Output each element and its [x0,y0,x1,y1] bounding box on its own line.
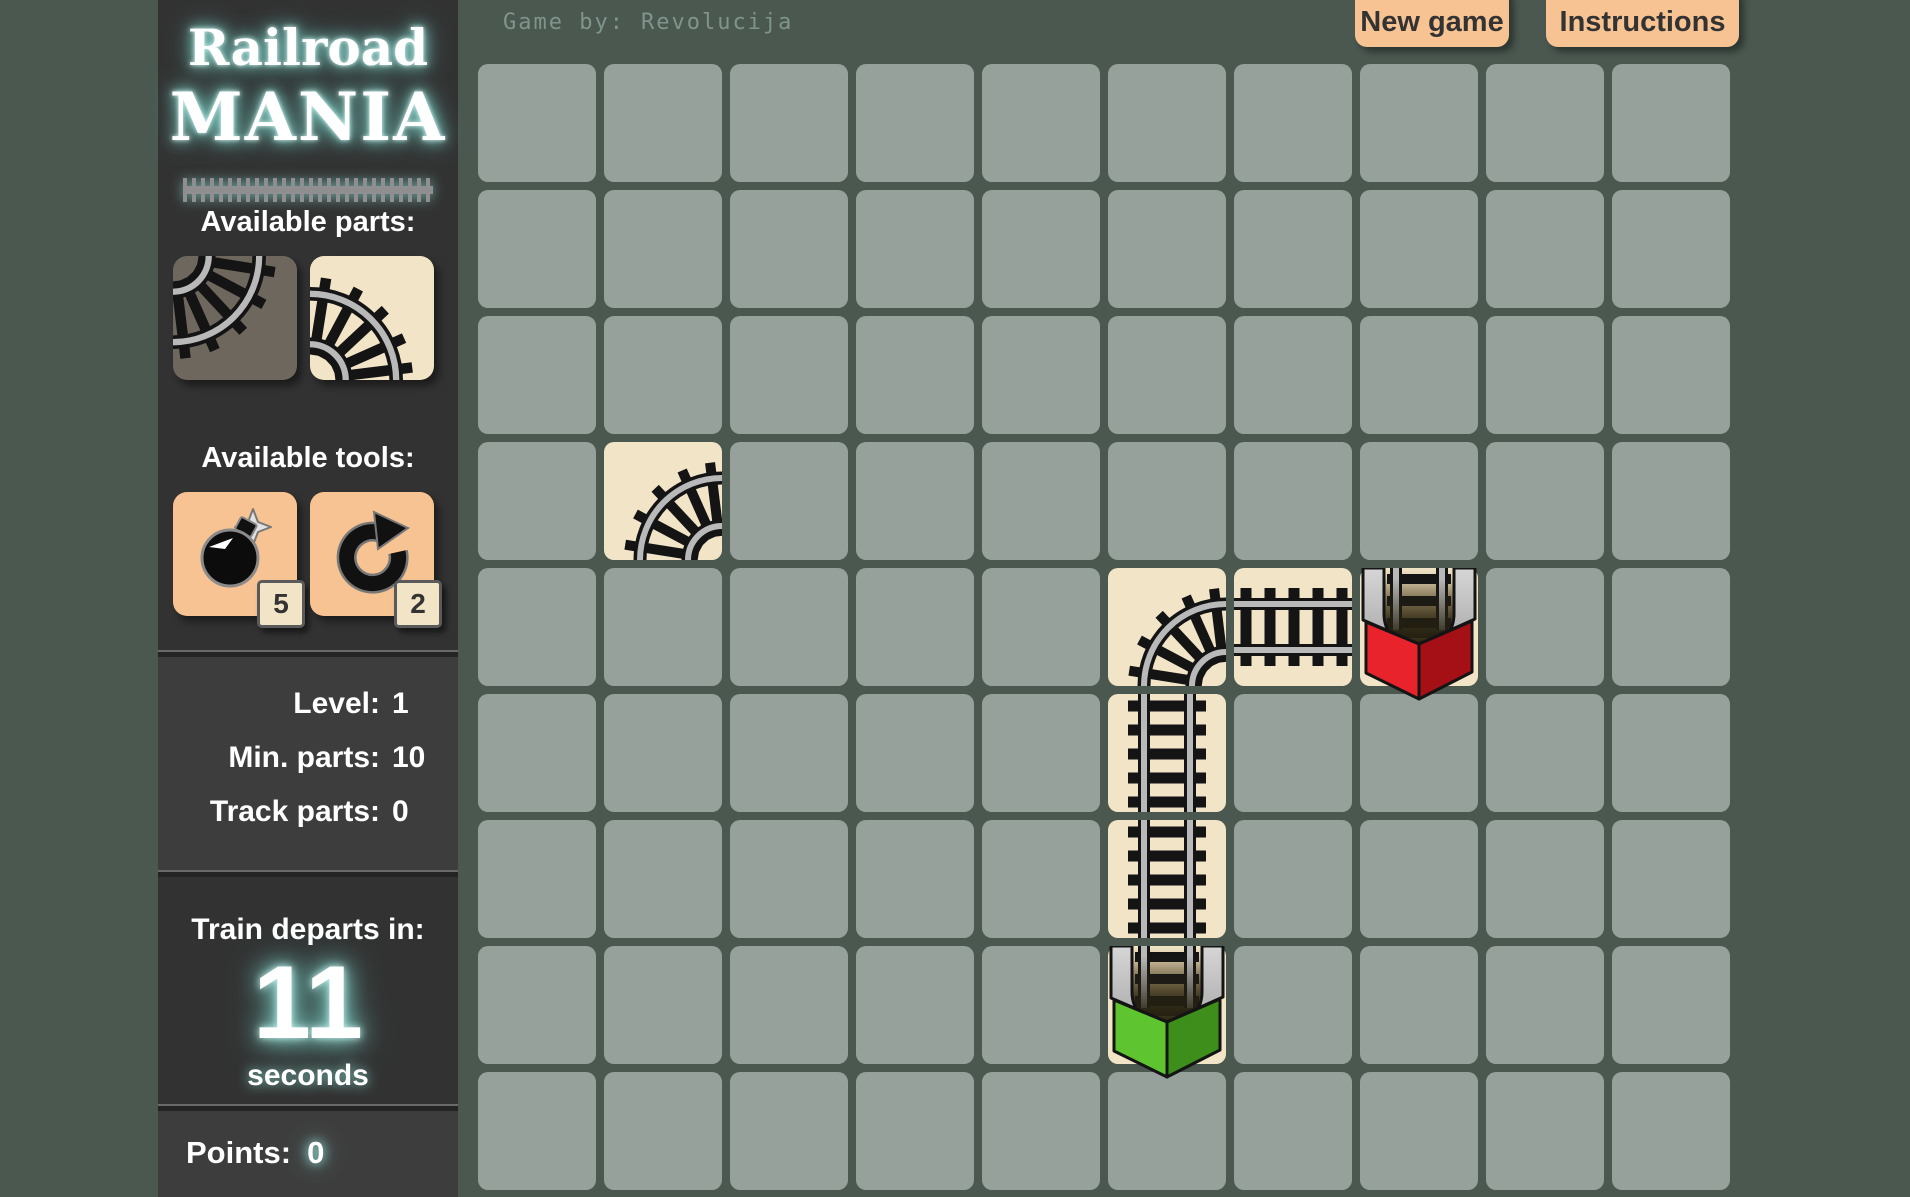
board-tile-r2-c9[interactable] [1612,316,1730,434]
board-tile-r4-c8[interactable] [1486,568,1604,686]
board-tile-r3-c1[interactable] [604,442,722,560]
credit-line: Game by:Revolucija [503,10,793,35]
tool-bomb[interactable]: 5 [173,492,297,616]
board-tile-r4-c2[interactable] [730,568,848,686]
train-departs-panel: Train departs in: 11 seconds [158,877,458,1104]
board-tile-r8-c9[interactable] [1612,1072,1730,1190]
board-tile-r4-c5[interactable] [1108,568,1226,686]
level-value: 1 [392,677,458,731]
board-tile-r2-c0[interactable] [478,316,596,434]
part-curve-left-bottom[interactable] [310,256,434,380]
board-tile-r4-c0[interactable] [478,568,596,686]
board-tile-r7-c5[interactable] [1108,946,1226,1064]
available-tools-heading: Available tools: [158,442,458,475]
board-tile-r5-c7[interactable] [1360,694,1478,812]
points-panel: Points:0 [158,1111,458,1197]
board-tile-r8-c7[interactable] [1360,1072,1478,1190]
board-tile-r3-c9[interactable] [1612,442,1730,560]
countdown-unit: seconds [158,1059,458,1093]
board-tile-r6-c9[interactable] [1612,820,1730,938]
train-departs-heading: Train departs in: [158,877,458,947]
board-tile-r0-c2[interactable] [730,64,848,182]
board-tile-r3-c6[interactable] [1234,442,1352,560]
board-tile-r3-c2[interactable] [730,442,848,560]
min-parts-value: 10 [392,731,458,785]
board-tile-r1-c9[interactable] [1612,190,1730,308]
board-tile-r7-c2[interactable] [730,946,848,1064]
track-curve [310,256,434,380]
board-tile-r6-c8[interactable] [1486,820,1604,938]
countdown-value: 11 [158,947,458,1059]
divider [158,1104,458,1111]
board-tile-r5-c1[interactable] [604,694,722,812]
available-parts-heading: Available parts: [158,206,458,239]
board-tile-r1-c0[interactable] [478,190,596,308]
points-label: Points: [186,1135,291,1170]
board-tile-r5-c6[interactable] [1234,694,1352,812]
track-parts-label: Track parts: [158,785,380,839]
board-tile-r2-c7[interactable] [1360,316,1478,434]
track-curve [173,256,297,380]
station-red [1360,568,1478,704]
board-tile-r1-c7[interactable] [1360,190,1478,308]
board-tile-r1-c1[interactable] [604,190,722,308]
board-tile-r7-c3[interactable] [856,946,974,1064]
board-tile-r0-c8[interactable] [1486,64,1604,182]
board-tile-r8-c0[interactable] [478,1072,596,1190]
board-tile-r6-c6[interactable] [1234,820,1352,938]
track-parts-value: 0 [392,785,458,839]
stats-panel: Level: 1 Min. parts: 10 Track parts: 0 [158,657,458,870]
board-tile-r1-c3[interactable] [856,190,974,308]
board-tile-r4-c6[interactable] [1234,568,1352,686]
track-straight-h [1234,568,1352,686]
parts-row [173,256,434,380]
divider [158,870,458,877]
board-tile-r2-c3[interactable] [856,316,974,434]
board-tile-r8-c5[interactable] [1108,1072,1226,1190]
board-tile-r8-c4[interactable] [982,1072,1100,1190]
board-tile-r2-c4[interactable] [982,316,1100,434]
board-tile-r6-c5[interactable] [1108,820,1226,938]
part-curve-top-left[interactable] [173,256,297,380]
logo-line1: Railroad [158,18,458,77]
board-tile-r6-c0[interactable] [478,820,596,938]
credit-label: Game by: [503,10,625,35]
board-tile-r1-c5[interactable] [1108,190,1226,308]
board-tile-r7-c1[interactable] [604,946,722,1064]
new-game-button[interactable]: New game [1355,0,1509,47]
board-tile-r8-c2[interactable] [730,1072,848,1190]
board-tile-r5-c5[interactable] [1108,694,1226,812]
board-tile-r5-c0[interactable] [478,694,596,812]
credit-value: Revolucija [641,10,793,35]
tools-row: 5 2 [173,492,434,616]
board-tile-r5-c2[interactable] [730,694,848,812]
board-tile-r3-c3[interactable] [856,442,974,560]
track-straight-v [1108,694,1226,812]
board-tile-r3-c5[interactable] [1108,442,1226,560]
board-tile-r8-c3[interactable] [856,1072,974,1190]
board-tile-r6-c3[interactable] [856,820,974,938]
board-tile-r0-c6[interactable] [1234,64,1352,182]
board-tile-r4-c1[interactable] [604,568,722,686]
board-tile-r4-c7[interactable] [1360,568,1478,686]
board-tile-r1-c6[interactable] [1234,190,1352,308]
board-tile-r0-c9[interactable] [1612,64,1730,182]
bomb-count-badge: 5 [257,580,305,628]
game-board [478,64,1730,1190]
tool-rotate[interactable]: 2 [310,492,434,616]
board-tile-r2-c1[interactable] [604,316,722,434]
rotate-count-badge: 2 [394,580,442,628]
board-tile-r3-c7[interactable] [1360,442,1478,560]
track-curve [604,442,722,560]
logo-line2: MANIA [158,78,458,156]
board-tile-r0-c1[interactable] [604,64,722,182]
board-tile-r7-c6[interactable] [1234,946,1352,1064]
board-tile-r7-c8[interactable] [1486,946,1604,1064]
sidebar: Railroad MANIA Available parts: Availabl… [158,0,458,1197]
board-tile-r0-c5[interactable] [1108,64,1226,182]
board-tile-r5-c4[interactable] [982,694,1100,812]
board-tile-r1-c8[interactable] [1486,190,1604,308]
board-tile-r5-c3[interactable] [856,694,974,812]
board-tile-r4-c4[interactable] [982,568,1100,686]
board-tile-r2-c6[interactable] [1234,316,1352,434]
railroad-track-divider-icon [183,178,433,202]
board-tile-r6-c2[interactable] [730,820,848,938]
level-label: Level: [158,677,380,731]
board-tile-r6-c1[interactable] [604,820,722,938]
board-tile-r8-c8[interactable] [1486,1072,1604,1190]
board-tile-r2-c2[interactable] [730,316,848,434]
board-tile-r8-c1[interactable] [604,1072,722,1190]
board-tile-r0-c7[interactable] [1360,64,1478,182]
track-straight-v [1108,820,1226,938]
board-tile-r6-c7[interactable] [1360,820,1478,938]
board-tile-r6-c4[interactable] [982,820,1100,938]
divider [158,650,458,657]
board-tile-r3-c0[interactable] [478,442,596,560]
min-parts-label: Min. parts: [158,731,380,785]
board-tile-r2-c5[interactable] [1108,316,1226,434]
station-green [1108,946,1226,1082]
instructions-button[interactable]: Instructions [1546,0,1739,47]
board-tile-r0-c3[interactable] [856,64,974,182]
points-value: 0 [307,1135,324,1170]
board-tile-r5-c9[interactable] [1612,694,1730,812]
track-curve [1108,568,1226,686]
board-tile-r1-c2[interactable] [730,190,848,308]
board-tile-r4-c9[interactable] [1612,568,1730,686]
board-tile-r4-c3[interactable] [856,568,974,686]
board-tile-r1-c4[interactable] [982,190,1100,308]
board-tile-r0-c4[interactable] [982,64,1100,182]
board-tile-r2-c8[interactable] [1486,316,1604,434]
board-tile-r3-c4[interactable] [982,442,1100,560]
board-tile-r8-c6[interactable] [1234,1072,1352,1190]
board-tile-r0-c0[interactable] [478,64,596,182]
board-tile-r7-c0[interactable] [478,946,596,1064]
board-tile-r7-c9[interactable] [1612,946,1730,1064]
board-tile-r3-c8[interactable] [1486,442,1604,560]
board-tile-r7-c4[interactable] [982,946,1100,1064]
board-tile-r7-c7[interactable] [1360,946,1478,1064]
board-tile-r5-c8[interactable] [1486,694,1604,812]
